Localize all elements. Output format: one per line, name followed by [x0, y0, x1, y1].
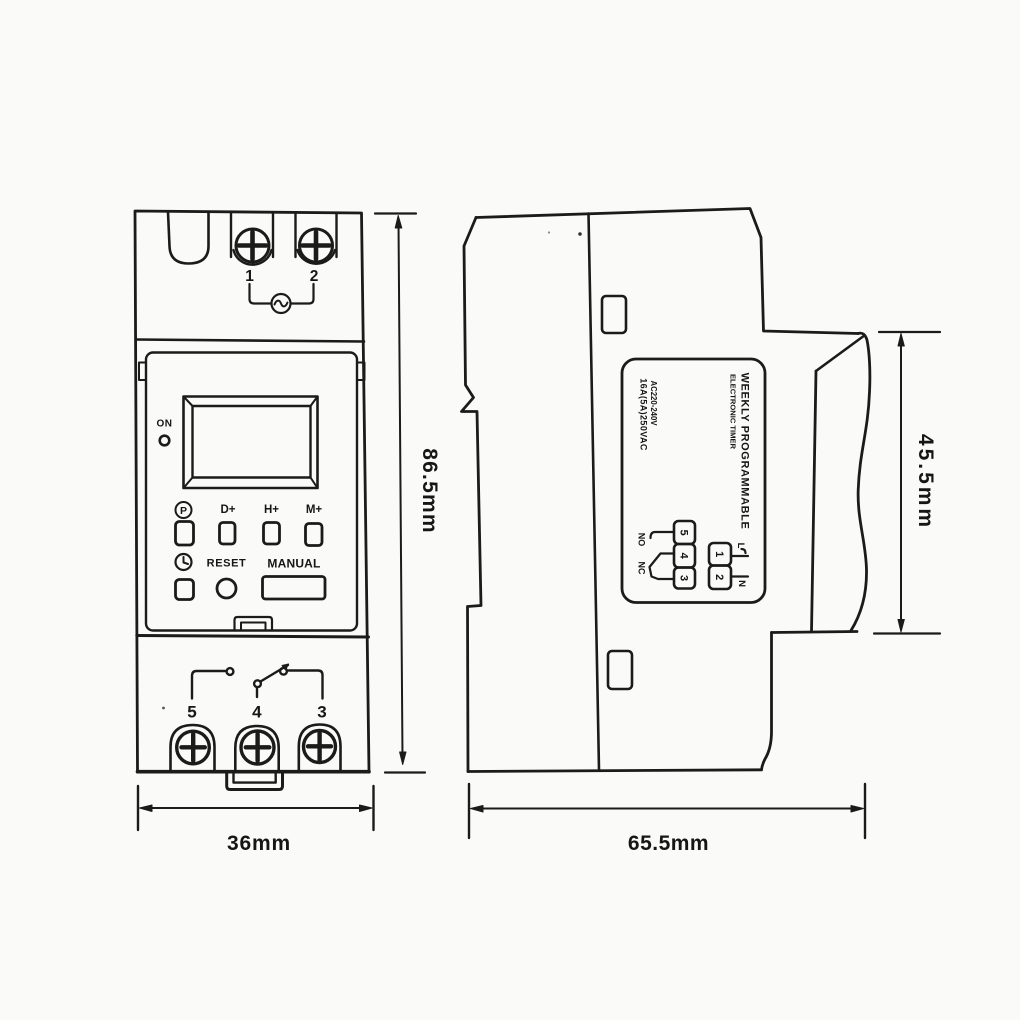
svg-text:ELECTRONIC TIMER: ELECTRONIC TIMER	[729, 374, 738, 450]
svg-text:1: 1	[245, 268, 254, 285]
svg-text:2: 2	[310, 268, 319, 285]
svg-text:H+: H+	[264, 504, 279, 516]
svg-text:65.5mm: 65.5mm	[628, 832, 709, 855]
svg-text:4: 4	[252, 703, 262, 722]
svg-text:86.5mm: 86.5mm	[418, 448, 441, 533]
svg-text:WEEKLY PROGRAMMABLE: WEEKLY PROGRAMMABLE	[739, 373, 751, 530]
svg-text:1: 1	[713, 551, 725, 557]
svg-text:D+: D+	[220, 504, 235, 516]
svg-text:N: N	[736, 580, 747, 587]
svg-text:AC220-240V: AC220-240V	[649, 380, 658, 426]
svg-text:5: 5	[187, 703, 196, 722]
svg-text:RESET: RESET	[207, 558, 247, 570]
svg-text:3: 3	[678, 575, 690, 581]
svg-text:3: 3	[317, 703, 326, 722]
svg-text:16A(5A)250VAC: 16A(5A)250VAC	[639, 378, 649, 451]
svg-text:L: L	[735, 543, 746, 549]
svg-text:4: 4	[678, 553, 690, 560]
svg-text:NC: NC	[637, 562, 647, 575]
svg-text:ON: ON	[157, 419, 173, 430]
svg-text:36mm: 36mm	[227, 832, 291, 855]
svg-text:P: P	[180, 505, 187, 517]
svg-text:MANUAL: MANUAL	[267, 557, 320, 571]
svg-text:45.5mm: 45.5mm	[914, 434, 937, 530]
svg-text:NO: NO	[637, 533, 647, 547]
svg-text:2: 2	[713, 574, 725, 580]
svg-text:M+: M+	[306, 504, 323, 516]
svg-text:5: 5	[678, 529, 690, 535]
